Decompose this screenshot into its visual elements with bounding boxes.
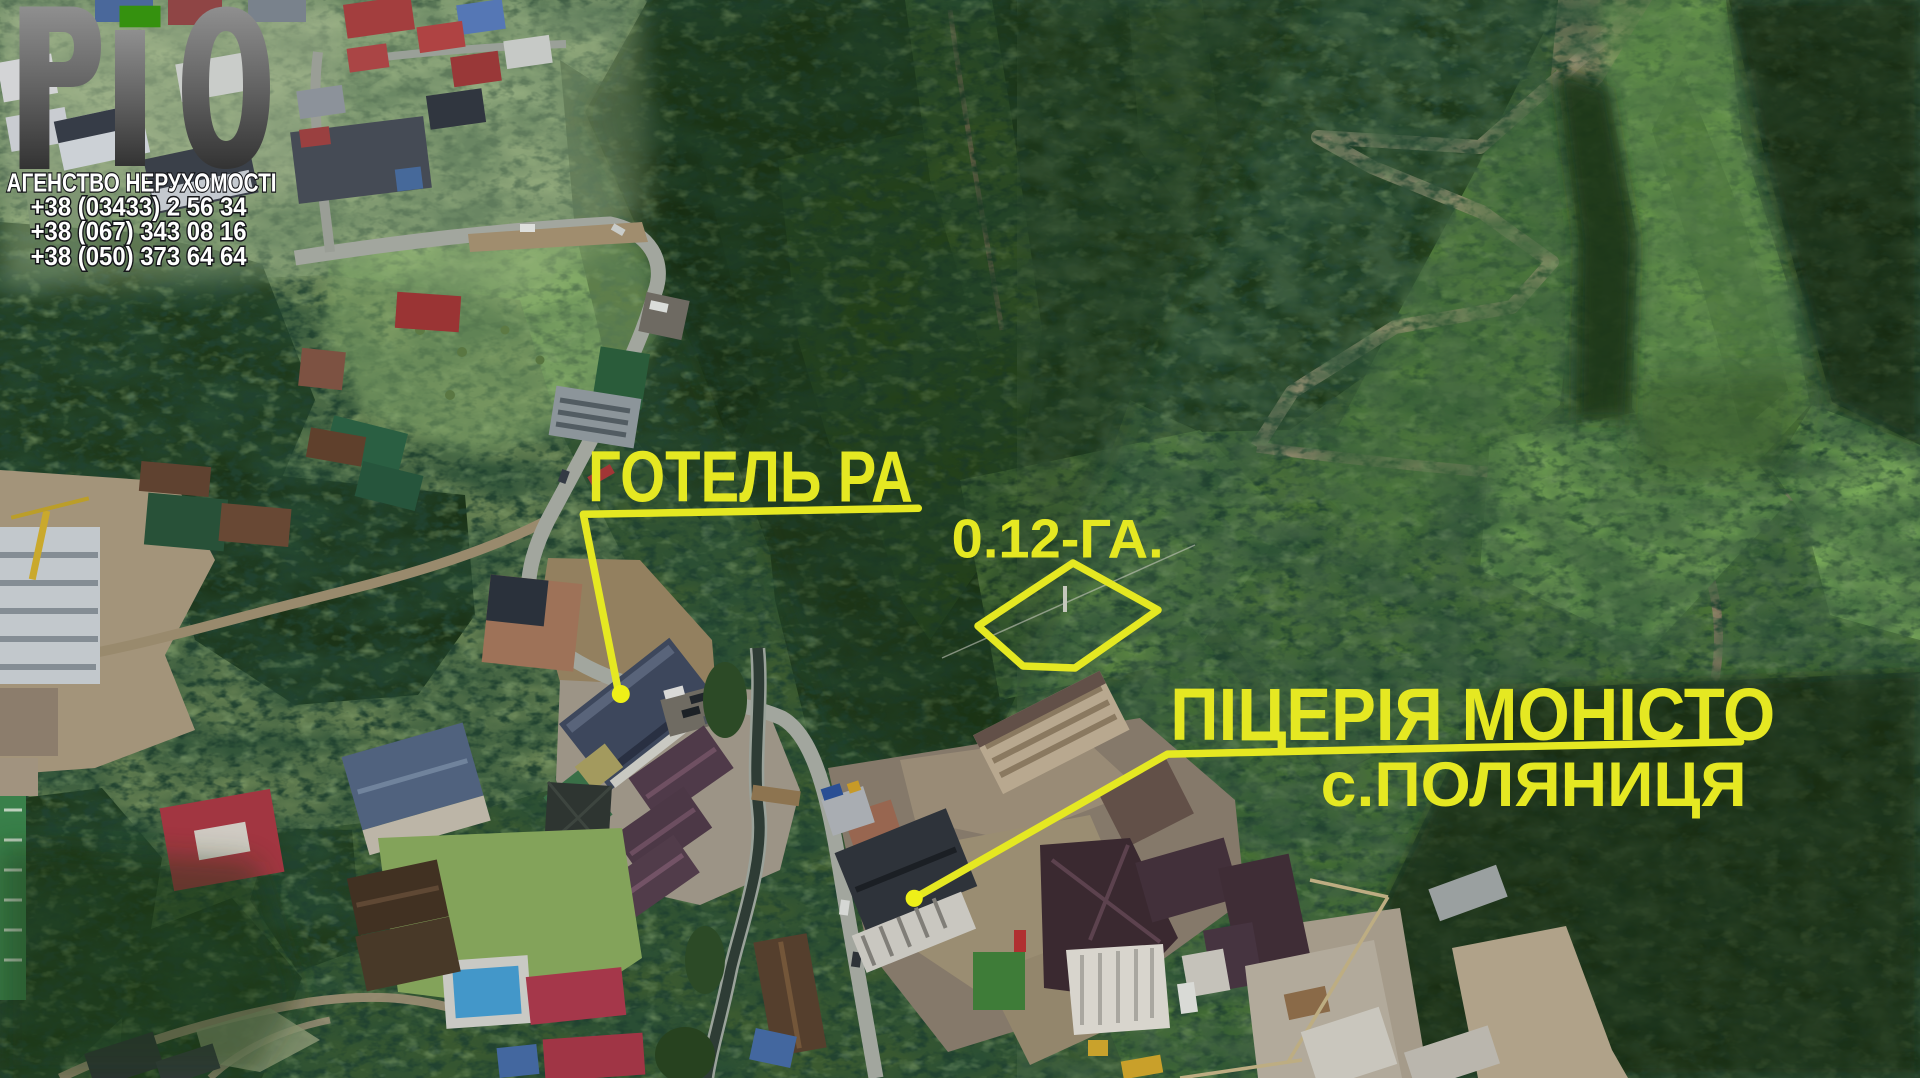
svg-text:+38 (050) 373 64 64: +38 (050) 373 64 64 [31,241,247,271]
svg-text:ГОТЕЛЬ РА: ГОТЕЛЬ РА [588,438,913,518]
svg-text:0.12-ГА.: 0.12-ГА. [952,508,1164,570]
svg-text:с.ПОЛЯНИЦЯ: с.ПОЛЯНИЦЯ [1321,750,1747,820]
svg-text:ПІЦЕРІЯ МОНІСТО: ПІЦЕРІЯ МОНІСТО [1170,673,1775,756]
